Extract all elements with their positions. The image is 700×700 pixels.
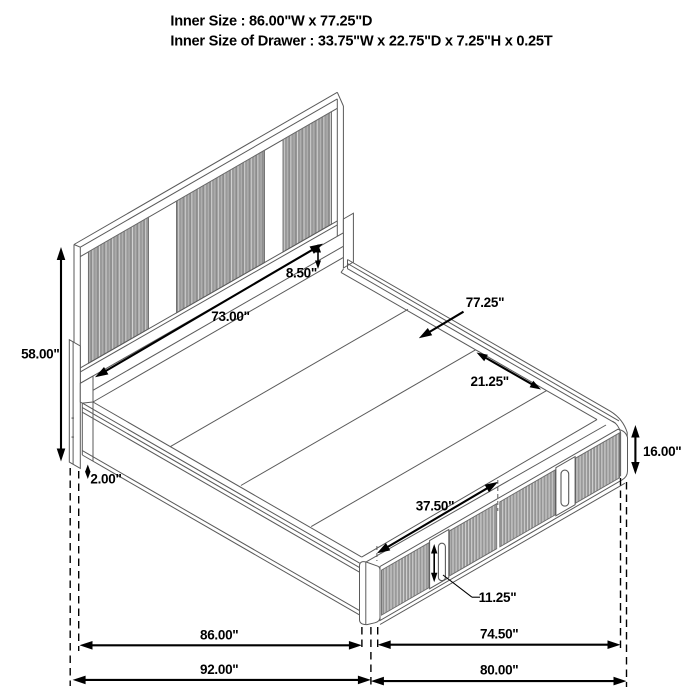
svg-text:21.25": 21.25" (471, 374, 509, 389)
svg-text:8.50": 8.50" (286, 266, 317, 281)
svg-text:80.00": 80.00" (480, 663, 518, 678)
svg-text:Inner Size of Drawer : 33.75"W: Inner Size of Drawer : 33.75"W x 22.75"D… (170, 33, 552, 49)
svg-text:2.00": 2.00" (90, 472, 121, 487)
svg-text:73.00": 73.00" (211, 309, 249, 324)
svg-text:Inner Size : 86.00"W x 77.25"D: Inner Size : 86.00"W x 77.25"D (170, 13, 372, 29)
svg-text:16.00": 16.00" (643, 444, 681, 459)
svg-text:74.50": 74.50" (480, 627, 518, 642)
svg-text:58.00": 58.00" (21, 347, 59, 362)
svg-text:92.00": 92.00" (200, 662, 238, 677)
svg-text:11.25": 11.25" (479, 590, 517, 605)
svg-text:77.25": 77.25" (466, 295, 504, 310)
svg-text:86.00": 86.00" (200, 627, 238, 642)
svg-text:37.50": 37.50" (416, 499, 454, 514)
